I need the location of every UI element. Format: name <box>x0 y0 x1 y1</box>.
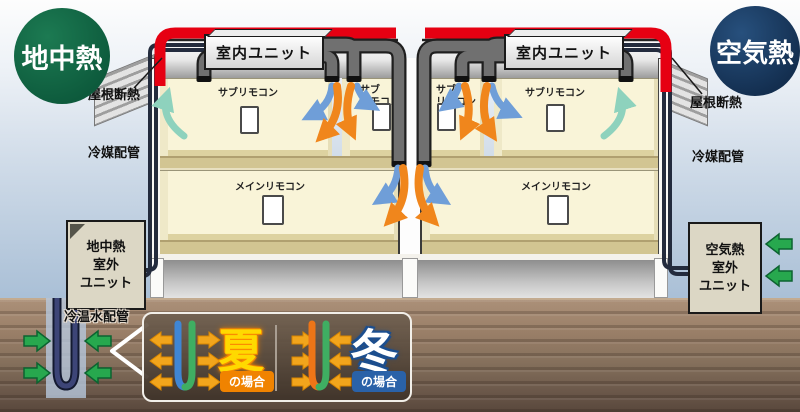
air-heat-arrow-icon <box>766 234 792 286</box>
indoor-unit-left: 室内ユニット <box>204 34 324 70</box>
duct-outlet-caps <box>197 76 634 167</box>
refrigerant-piping-label-right: 冷媒配管 <box>692 146 744 165</box>
summer-loop-pipe-icon <box>178 324 192 387</box>
air-heat-badge: 空気熱 <box>710 6 800 96</box>
refrigerant-pipe-lines <box>128 45 700 276</box>
winter-loop-pipe-icon <box>312 324 326 387</box>
roof-insulation-label-right: 屋根断熱 <box>690 92 742 111</box>
winter-case-badge: の場合 <box>352 371 406 392</box>
legend-divider <box>275 325 277 391</box>
season-legend-box: 夏 の場合 冬 の場合 <box>142 312 412 402</box>
diagram-canvas: サブリモコン サブリモコン サブリモコン サブリモコン メインリモコン メインリ… <box>0 0 800 412</box>
air-heat-outdoor-unit: 空気熱 室外 ユニット <box>688 222 762 314</box>
geothermal-badge: 地中熱 <box>14 8 110 104</box>
geothermal-outdoor-unit: 地中熱 室外 ユニット <box>66 220 146 310</box>
summer-case-badge: の場合 <box>220 371 274 392</box>
warm-air-arrow-icon <box>322 86 492 220</box>
indoor-unit-right: 室内ユニット <box>504 34 624 70</box>
refrigerant-piping-label-left: 冷媒配管 <box>88 142 140 161</box>
water-piping-label: 冷温水配管 <box>64 306 129 325</box>
